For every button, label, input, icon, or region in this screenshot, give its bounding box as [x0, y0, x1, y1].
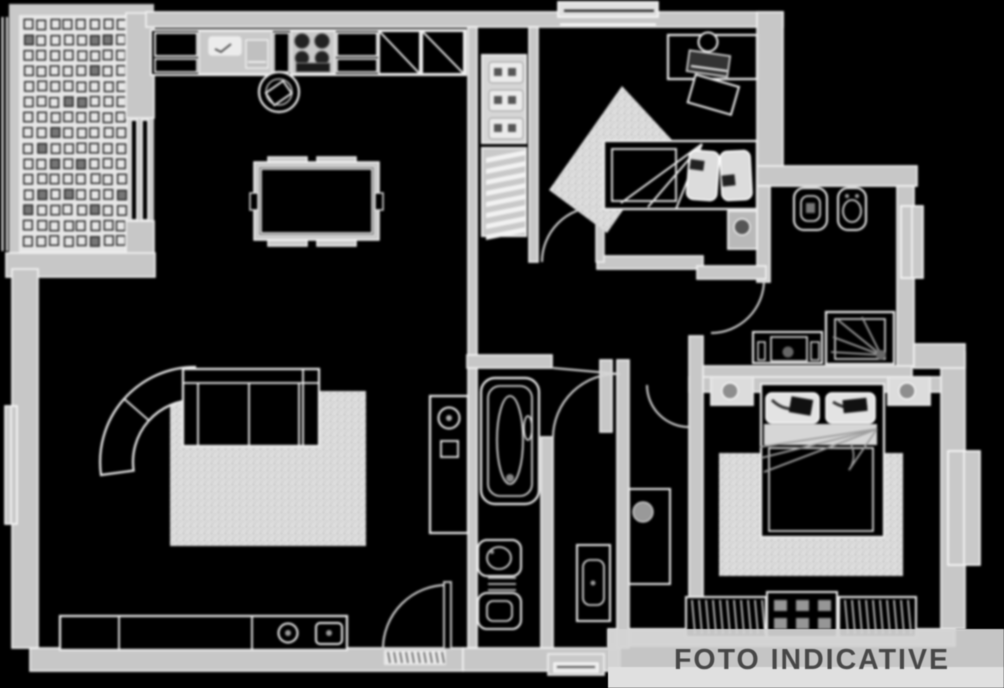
svg-text:FOTO INDICATIVE: FOTO INDICATIVE	[674, 644, 950, 676]
